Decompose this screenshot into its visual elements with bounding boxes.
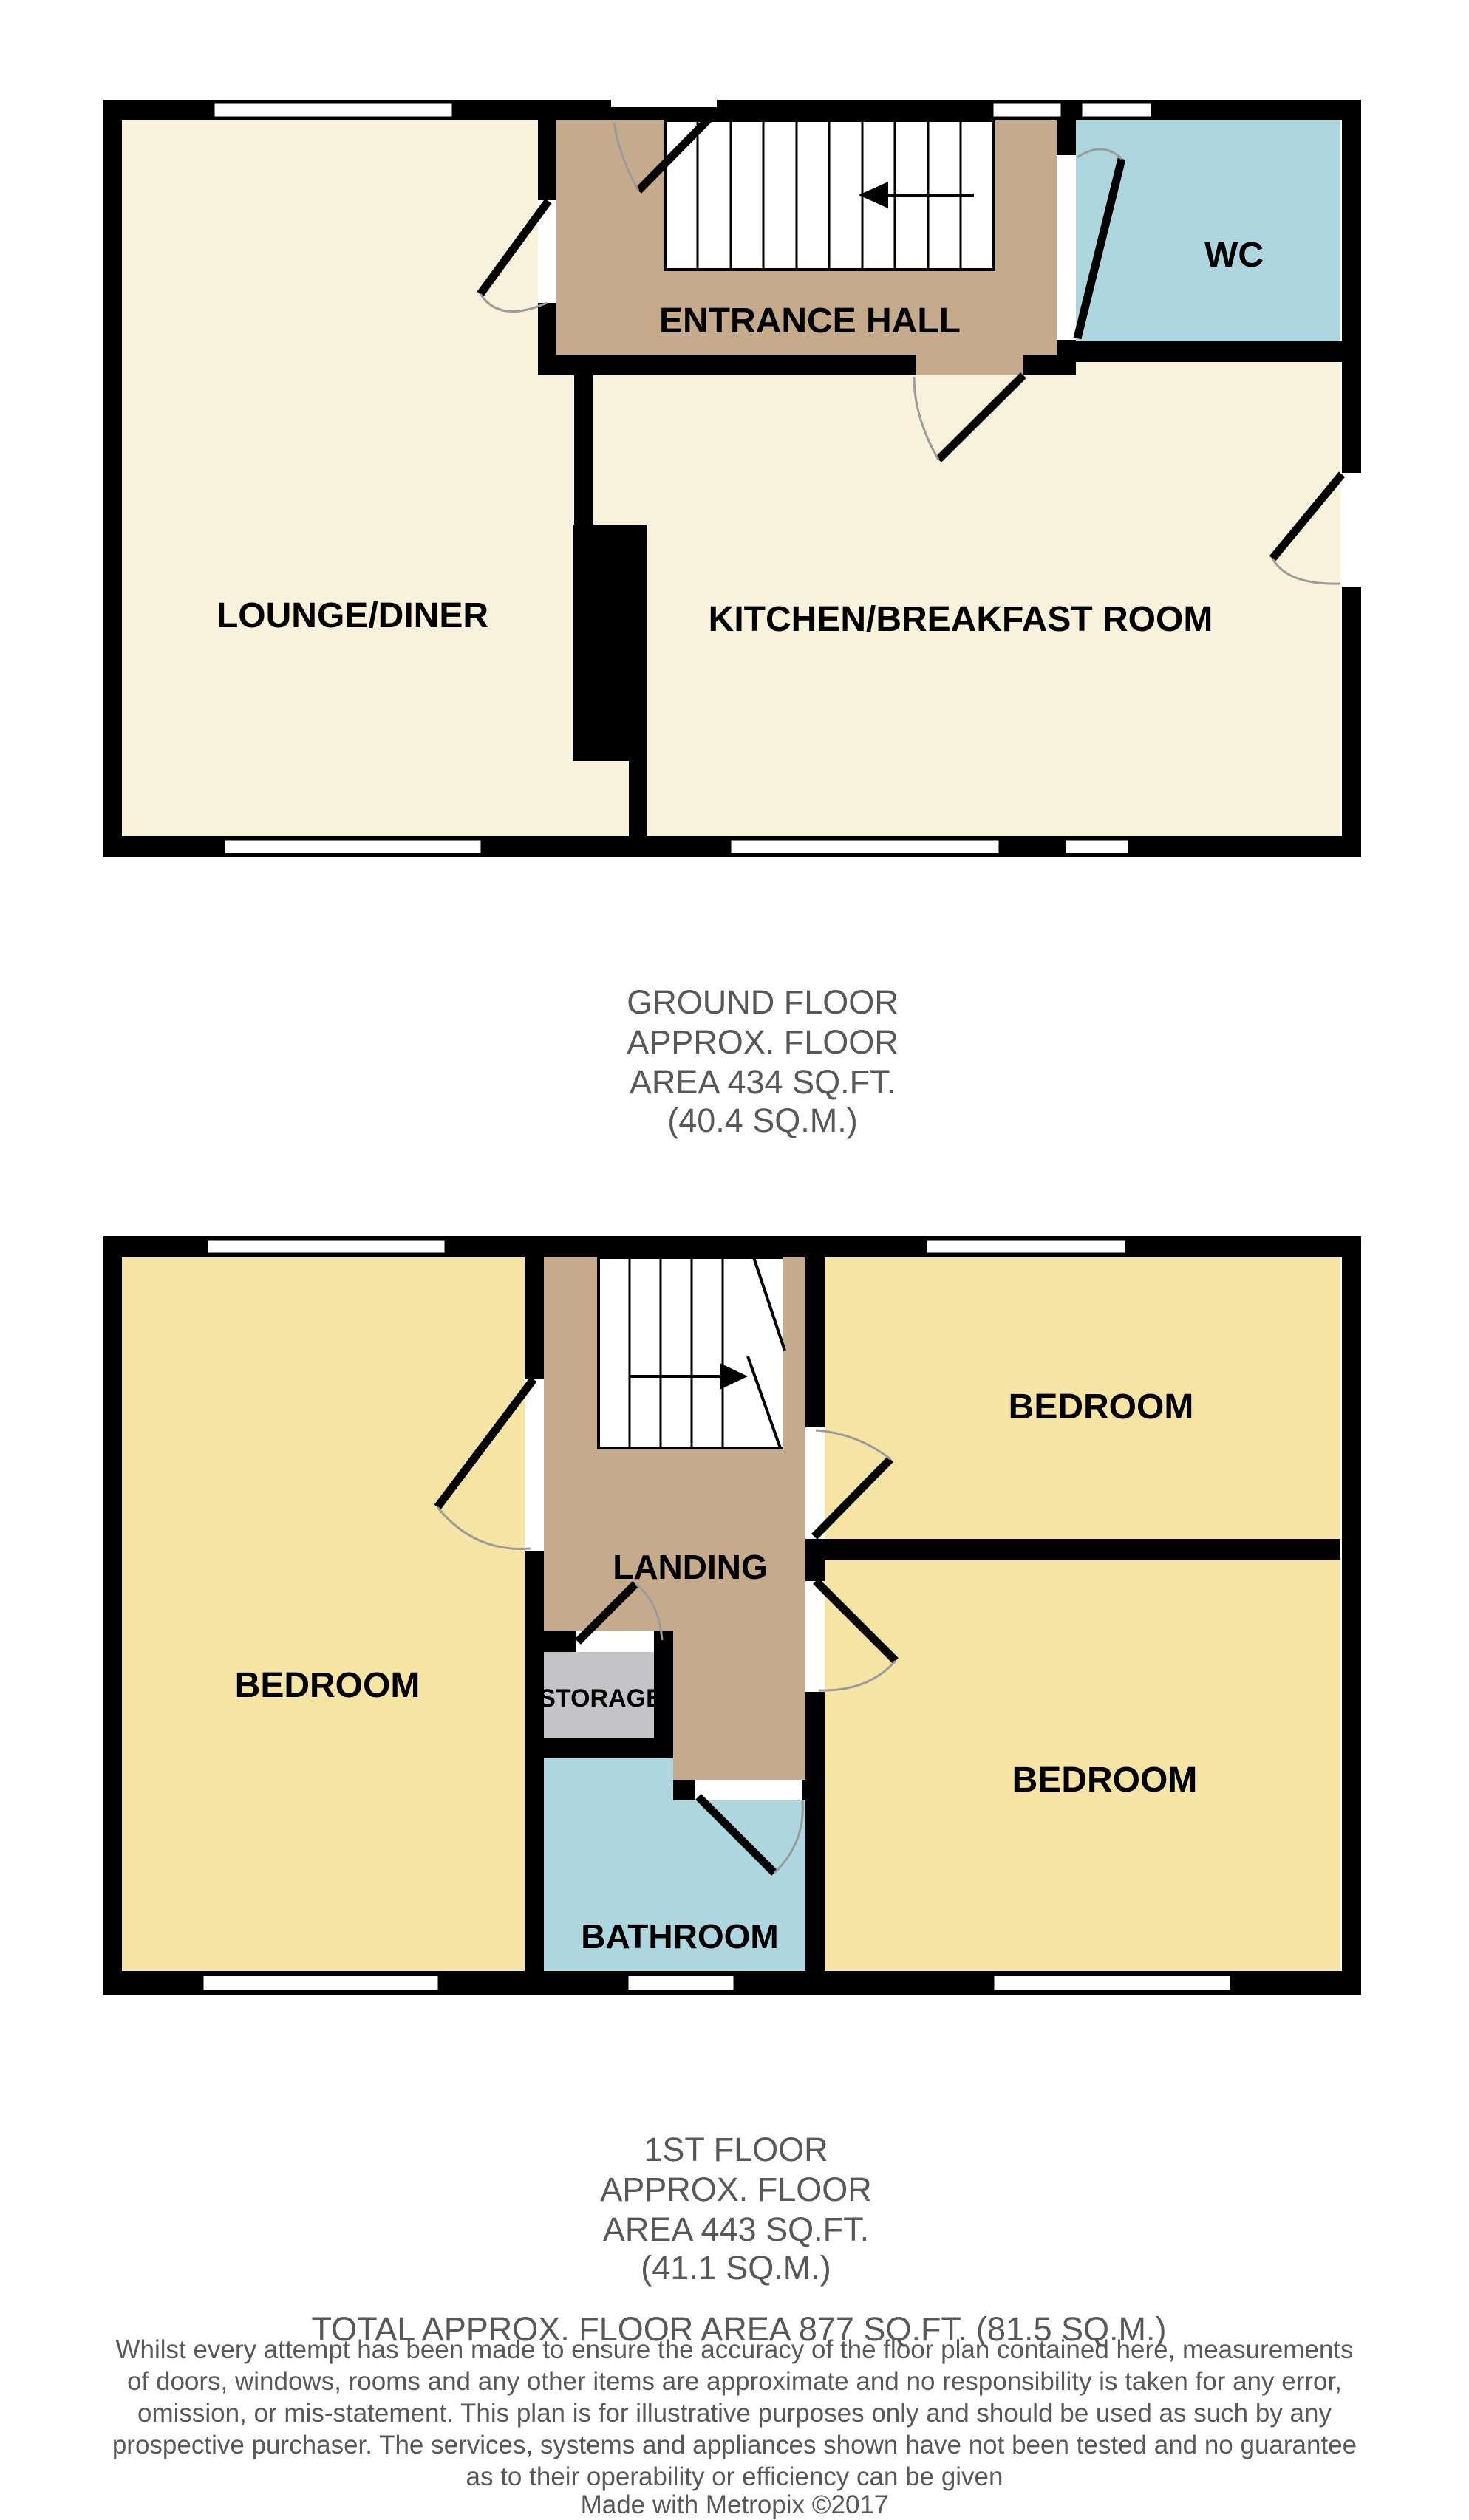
ff-landing-right-wall-mid	[805, 1539, 825, 1581]
hall-label: ENTRANCE HALL	[659, 301, 961, 341]
disclaimer-line3: omission, or mis-statement. This plan is…	[137, 2399, 1332, 2428]
bedroom-topright-label: BEDROOM	[1009, 1387, 1194, 1427]
landing-label: LANDING	[613, 1548, 768, 1586]
credit-line: Made with Metropix ©2017	[581, 2490, 889, 2519]
window	[992, 102, 1063, 118]
gf-left-wall	[103, 100, 122, 857]
storage-label: STORAGE	[539, 1684, 663, 1713]
bedroom-left-label: BEDROOM	[235, 1666, 420, 1705]
kitchen-door-opening	[1342, 473, 1361, 587]
ff-landing-right-wall-upper	[805, 1257, 825, 1427]
kitchen-label: KITCHEN/BREAKFAST ROOM	[709, 600, 1213, 639]
disclaimer-line1: Whilst every attempt has been made to en…	[115, 2335, 1353, 2364]
window	[223, 839, 483, 855]
disclaimer-line4: prospective purchaser. The services, sys…	[112, 2431, 1357, 2459]
gf-summary-line2: APPROX. FLOOR	[627, 1023, 899, 1061]
ff-summary-line4: (41.1 SQ.M.)	[641, 2249, 831, 2287]
window	[1080, 102, 1153, 118]
ff-landing-right-wall-lower	[805, 1692, 825, 1971]
bathroom-label: BATHROOM	[581, 1917, 778, 1956]
front-door-threshold	[611, 107, 717, 111]
lounge-diner-room	[122, 120, 629, 836]
window	[729, 839, 1001, 855]
front-door-opening	[611, 98, 717, 109]
bedroom-left-room	[122, 1257, 525, 1971]
disclaimer: Whilst every attempt has been made to en…	[112, 2335, 1357, 2519]
window	[1064, 839, 1130, 855]
ground-floor-plan: LOUNGE/DINER ENTRANCE HALL WC KITCHEN/BR…	[103, 98, 1361, 857]
first-floor-summary: 1ST FLOOR APPROX. FLOOR AREA 443 SQ.FT. …	[311, 2131, 1166, 2348]
gf-summary-line3: AREA 434 SQ.FT.	[630, 1063, 896, 1101]
disclaimer-line5: as to their operability or efficiency ca…	[466, 2462, 1003, 2491]
window	[992, 1974, 1232, 1992]
bedroom-bottomright-label: BEDROOM	[1012, 1761, 1198, 1800]
floorplan-page: LOUNGE/DINER ENTRANCE HALL WC KITCHEN/BR…	[0, 0, 1469, 2520]
ff-stairs	[599, 1257, 785, 1448]
ff-bedroom-divider-lower	[525, 1551, 544, 1971]
wc-label: WC	[1204, 236, 1264, 275]
bathroom-top-wall-right	[802, 1780, 825, 1800]
ff-left-wall	[103, 1236, 122, 1995]
floorplan-canvas: LOUNGE/DINER ENTRANCE HALL WC KITCHEN/BR…	[0, 0, 1469, 2520]
gf-wc-left-wall-upper	[1057, 120, 1076, 155]
gf-lounge-kitchen-wall-upper	[574, 374, 593, 525]
storage-top-wall-left	[525, 1631, 576, 1652]
ff-summary-line1: 1ST FLOOR	[644, 2131, 828, 2168]
gf-lounge-hall-wall-upper	[538, 120, 556, 200]
gf-summary-line4: (40.4 SQ.M.)	[667, 1102, 858, 1139]
ff-summary-line2: APPROX. FLOOR	[600, 2171, 872, 2208]
ground-floor-summary: GROUND FLOOR APPROX. FLOOR AREA 434 SQ.F…	[627, 983, 899, 1139]
window	[627, 1974, 735, 1992]
window	[213, 102, 454, 118]
disclaimer-line2: of doors, windows, rooms and any other i…	[127, 2367, 1342, 2396]
ff-summary-line3: AREA 443 SQ.FT.	[603, 2210, 869, 2248]
gf-stairs	[665, 120, 994, 270]
ff-bedrooms-divider-wall	[825, 1539, 1340, 1560]
gf-wc-bottom-wall	[1057, 341, 1342, 362]
window	[925, 1239, 1127, 1254]
gf-chimney-block	[573, 525, 647, 761]
storage-bottom-wall	[525, 1738, 673, 1758]
window	[206, 1239, 446, 1254]
ff-right-wall	[1342, 1236, 1361, 1995]
ff-bedroom-divider-upper	[525, 1257, 544, 1379]
window	[202, 1974, 440, 1992]
gf-summary-line1: GROUND FLOOR	[627, 983, 899, 1021]
first-floor-plan: BEDROOM BEDROOM BEDROOM LANDING STORAGE …	[103, 1236, 1361, 1995]
lounge-label: LOUNGE/DINER	[217, 596, 488, 635]
gf-hall-bottom-wall-left	[538, 355, 916, 375]
bathroom-top-wall-left	[673, 1780, 695, 1800]
gf-lounge-kitchen-wall-lower	[629, 761, 647, 836]
